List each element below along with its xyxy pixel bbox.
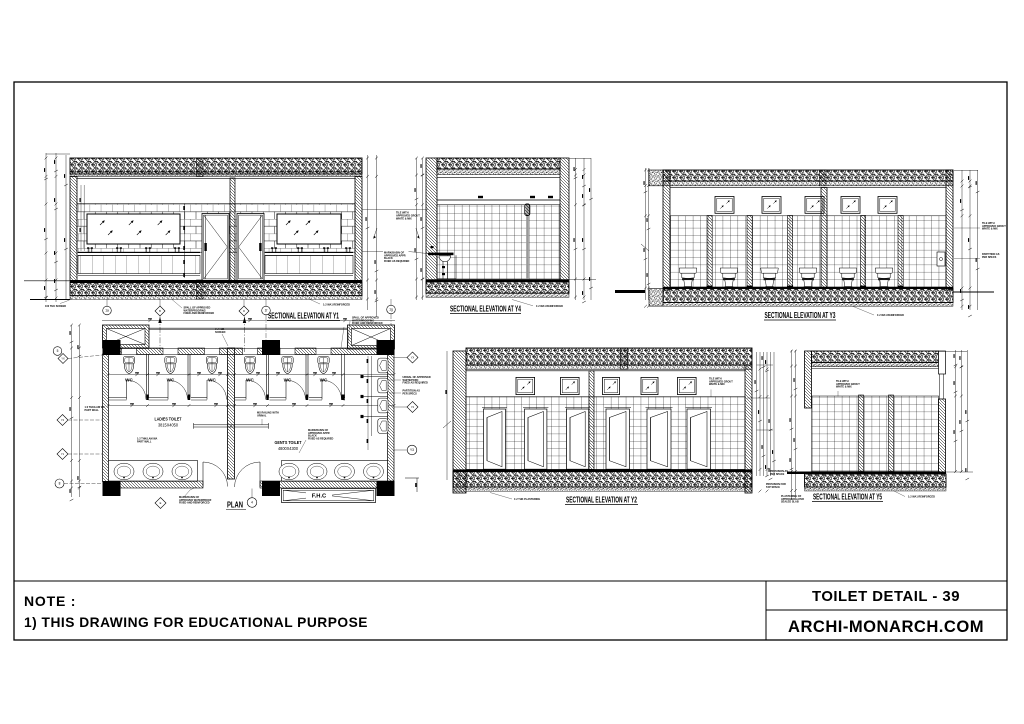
svg-text:1g: 1g xyxy=(389,308,393,312)
svg-text:1:2 WA1 REINFORCED: 1:2 WA1 REINFORCED xyxy=(536,305,563,308)
svg-text:WHITE & MIX: WHITE & MIX xyxy=(836,386,852,389)
svg-text:FIXED AS REQUIRED: FIXED AS REQUIRED xyxy=(308,437,334,440)
svg-text:Y3: Y3 xyxy=(410,448,414,452)
svg-text:FIXED AND REINFORCED: FIXED AND REINFORCED xyxy=(179,502,210,505)
svg-text:1:2 WA1 REINFORCED: 1:2 WA1 REINFORCED xyxy=(877,314,904,317)
svg-text:PER SPECS: PER SPECS xyxy=(403,392,418,395)
svg-text:D: D xyxy=(243,309,245,313)
svg-text:5: 5 xyxy=(57,349,59,353)
svg-text:SECTIONAL ELEVATION AT Y4: SECTIONAL ELEVATION AT Y4 xyxy=(450,304,521,313)
svg-text:TOILET DETAIL - 39: TOILET DETAIL - 39 xyxy=(812,588,960,605)
svg-text:1f: 1f xyxy=(265,309,268,313)
svg-text:1a: 1a xyxy=(105,309,109,313)
svg-text:YX: YX xyxy=(411,356,415,360)
svg-text:WHITE & MIX: WHITE & MIX xyxy=(982,228,998,231)
svg-text:Y2: Y2 xyxy=(411,405,415,409)
svg-text:TAP SPACE: TAP SPACE xyxy=(766,486,780,489)
svg-text:FIXED AND REINFORCED: FIXED AND REINFORCED xyxy=(184,312,215,315)
svg-text:SECTIONAL ELEVATION AT Y5: SECTIONAL ELEVATION AT Y5 xyxy=(813,493,882,502)
svg-text:1:2 WA1 REINFORCED: 1:2 WA1 REINFORCED xyxy=(323,304,350,307)
svg-text:1:2 THK PLASTERING: 1:2 THK PLASTERING xyxy=(514,498,540,501)
svg-text:SCREED: SCREED xyxy=(215,331,226,334)
svg-text:3815X4050: 3815X4050 xyxy=(158,423,179,428)
svg-text:FIXED AND REINFORCED: FIXED AND REINFORCED xyxy=(352,322,383,325)
svg-text:1:2 WA1 REINFORCED: 1:2 WA1 REINFORCED xyxy=(908,496,935,499)
svg-text:4: 4 xyxy=(251,501,253,505)
svg-text:WHITE & MIX: WHITE & MIX xyxy=(709,383,725,386)
svg-text:FIXED AS REQUIRED: FIXED AS REQUIRED xyxy=(403,382,429,385)
svg-text:PART WALL: PART WALL xyxy=(85,409,100,412)
svg-text:Y1: Y1 xyxy=(61,452,65,456)
svg-text:PER SPACE: PER SPACE xyxy=(770,473,785,476)
svg-text:URINAL: URINAL xyxy=(257,414,267,417)
svg-text:NOTE :: NOTE : xyxy=(24,593,76,609)
svg-text:SECTIONAL ELEVATION AT Y3: SECTIONAL ELEVATION AT Y3 xyxy=(765,311,836,320)
svg-text:FIXED AS REQUIRED: FIXED AS REQUIRED xyxy=(384,260,410,263)
svg-text:SECTIONAL ELEVATION AT Y1: SECTIONAL ELEVATION AT Y1 xyxy=(268,311,339,320)
svg-text:PLAN: PLAN xyxy=(227,501,243,510)
svg-text:B: B xyxy=(159,309,161,313)
svg-text:PER SPECS: PER SPECS xyxy=(982,256,997,259)
svg-text:1) THIS DRAWING FOR EDUCATIONA: 1) THIS DRAWING FOR EDUCATIONAL PURPOSE xyxy=(24,614,368,630)
svg-text:YX: YX xyxy=(61,357,65,361)
svg-text:F.H.C: F.H.C xyxy=(312,493,327,499)
svg-text:PART WALL: PART WALL xyxy=(137,440,152,443)
svg-text:ARCHI-MONARCH.COM: ARCHI-MONARCH.COM xyxy=(788,617,984,636)
svg-text:WHITE & MIX: WHITE & MIX xyxy=(396,217,412,220)
svg-text:SEALED SLAB: SEALED SLAB xyxy=(781,501,799,504)
svg-text:LADIES TOILET: LADIES TOILET xyxy=(155,417,182,422)
svg-text:Y2: Y2 xyxy=(61,418,65,422)
svg-text:4800X4300: 4800X4300 xyxy=(278,446,299,451)
svg-text:8: 8 xyxy=(59,482,61,486)
svg-text:E: E xyxy=(160,501,162,505)
svg-text:SECTIONAL ELEVATION AT Y2: SECTIONAL ELEVATION AT Y2 xyxy=(566,496,637,505)
svg-text:GENTS TOILET: GENTS TOILET xyxy=(275,440,302,445)
svg-text:100 THK SCREED: 100 THK SCREED xyxy=(45,305,66,308)
